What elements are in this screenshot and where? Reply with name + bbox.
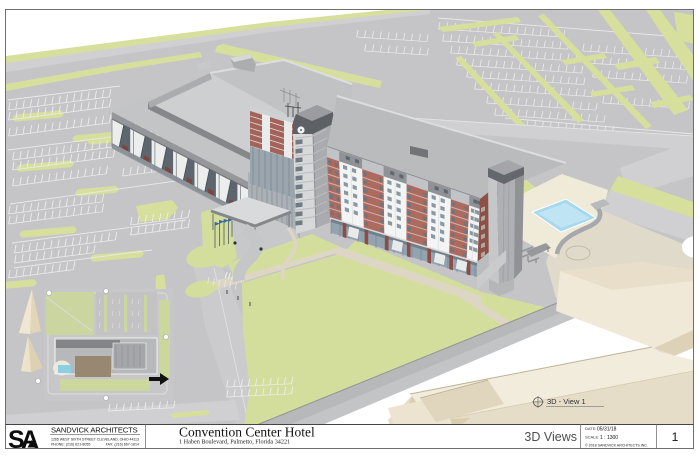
svg-text:3D - View 1: 3D - View 1 (547, 397, 586, 406)
svg-text:05/31/18: 05/31/18 (597, 427, 617, 433)
svg-text:DATE:: DATE: (585, 426, 596, 431)
svg-text:1 Haben Boulevard, Palmetto, F: 1 Haben Boulevard, Palmetto, Florida 342… (179, 439, 290, 446)
svg-text:1 : 1300: 1 : 1300 (600, 435, 618, 441)
svg-text:FAX: (216) 667-1814: FAX: (216) 667-1814 (106, 443, 139, 447)
svg-text:© 2018 SANDVICK ARCHITECTS INC: © 2018 SANDVICK ARCHITECTS INC. (585, 444, 648, 448)
svg-text:Convention Center Hotel: Convention Center Hotel (179, 425, 315, 440)
svg-text:A: A (21, 426, 39, 454)
svg-text:SANDVICK ARCHITECTS: SANDVICK ARCHITECTS (51, 426, 138, 435)
svg-text:1265 WEST SIXTH STREET CLEVELA: 1265 WEST SIXTH STREET CLEVELAND, OHIO 4… (51, 438, 139, 442)
svg-text:SCALE:: SCALE: (585, 435, 599, 440)
svg-text:1: 1 (672, 430, 679, 444)
svg-text:3D Views: 3D Views (524, 430, 577, 444)
svg-text:PHONE: (216) 621-8055: PHONE: (216) 621-8055 (51, 443, 90, 447)
